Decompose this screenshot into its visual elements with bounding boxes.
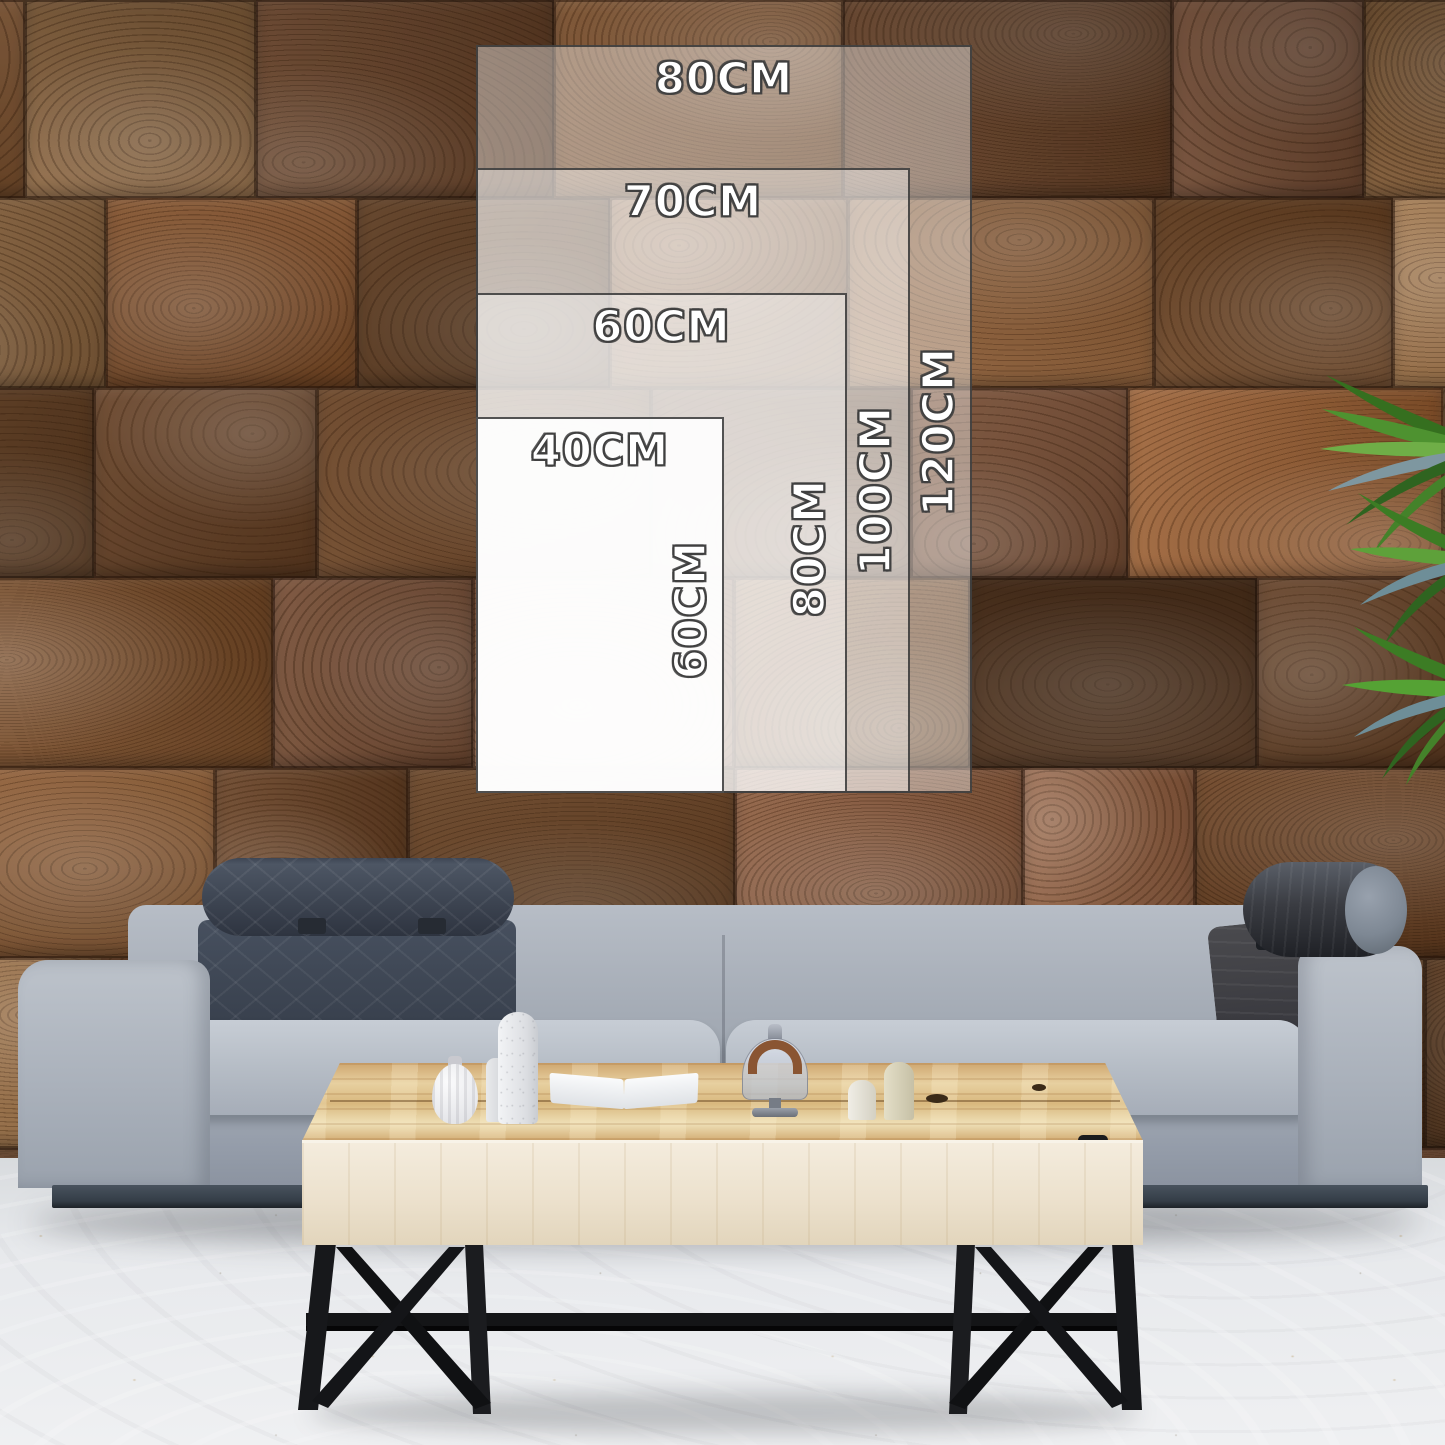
- plant-cluster-bottom: [1342, 627, 1445, 785]
- size-height-label-80: 80CM: [785, 479, 835, 617]
- size-height-label-60: 60CM: [666, 541, 716, 679]
- table-top-surface: [302, 1063, 1143, 1141]
- short-candle: [848, 1080, 876, 1120]
- table-front-face: [302, 1140, 1143, 1245]
- tall-candle: [884, 1062, 914, 1120]
- wood-knot: [926, 1094, 948, 1103]
- size-width-label-40: 40CM: [478, 426, 722, 476]
- book-left-page: [549, 1073, 624, 1110]
- plant-leaves: [1320, 365, 1445, 785]
- size-width-label-70: 70CM: [478, 177, 908, 227]
- book-right-page: [623, 1073, 698, 1110]
- open-book: [548, 1068, 700, 1108]
- gourd-vase: [432, 1064, 478, 1124]
- plant-cluster-mid: [1350, 493, 1445, 645]
- size-rect-40x60: 40CM 60CM: [476, 417, 724, 793]
- size-height-label-120: 120CM: [914, 347, 964, 516]
- tall-vase: [498, 1012, 538, 1124]
- wood-knot: [1032, 1084, 1046, 1091]
- living-room-size-guide-mockup: 80CM 120CM 70CM 100CM 60CM 80CM 40CM 60C…: [0, 0, 1445, 1445]
- table-metal-legs: [290, 1243, 1150, 1418]
- size-height-label-100: 100CM: [851, 406, 901, 575]
- cloche-foot: [752, 1108, 798, 1117]
- size-width-label-60: 60CM: [478, 302, 845, 352]
- size-width-label-80: 80CM: [478, 54, 970, 104]
